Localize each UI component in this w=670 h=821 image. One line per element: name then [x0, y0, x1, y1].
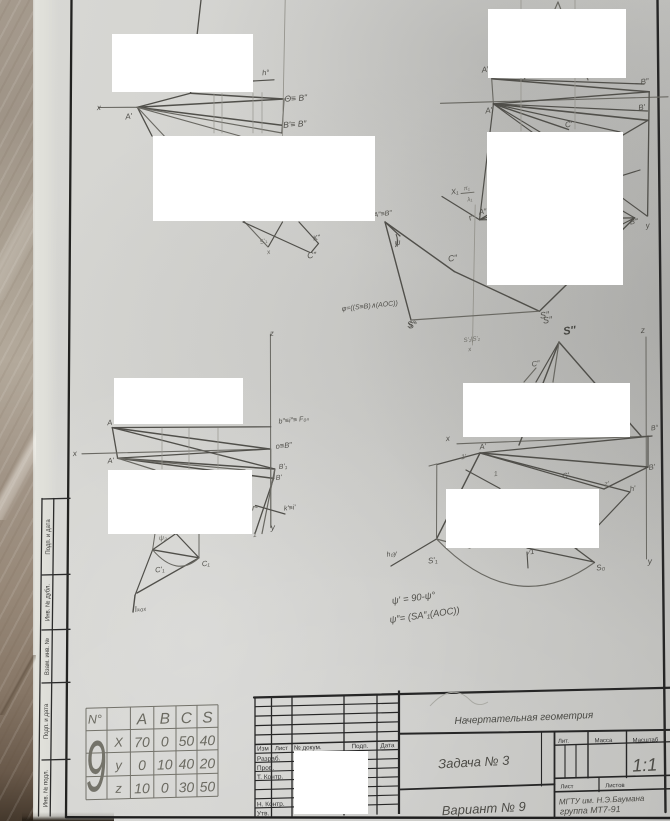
svg-text:Вариант № 9: Вариант № 9 — [441, 799, 526, 818]
svg-text:z': z' — [603, 481, 610, 489]
svg-text:B': B' — [638, 103, 647, 113]
svg-text:S: S — [202, 709, 213, 726]
svg-text:B°: B° — [650, 424, 659, 433]
svg-text:0: 0 — [161, 779, 169, 795]
svg-text:C₁: C₁ — [201, 559, 210, 569]
svg-text:Лист: Лист — [275, 746, 288, 752]
svg-text:30: 30 — [178, 779, 194, 795]
svg-text:10: 10 — [134, 780, 150, 796]
svg-text:B'₁: B'₁ — [278, 463, 288, 471]
svg-text:Разраб.: Разраб. — [257, 754, 281, 763]
svg-text:Инв. № подл.: Инв. № подл. — [42, 769, 49, 807]
svg-text:Пров.: Пров. — [257, 765, 275, 772]
svg-text:Взам. инв. №: Взам. инв. № — [44, 638, 51, 675]
svg-text:S″: S″ — [542, 314, 553, 325]
svg-text:70: 70 — [134, 734, 150, 750]
svg-text:0: 0 — [138, 757, 146, 773]
svg-text:A': A' — [106, 456, 115, 466]
svg-text:A': A' — [484, 106, 494, 116]
svg-text:1': 1' — [461, 454, 468, 462]
svg-text:S₀: S₀ — [596, 562, 606, 572]
svg-text:B': B' — [648, 462, 656, 472]
svg-text:20: 20 — [198, 755, 215, 771]
svg-text:S″: S″ — [563, 324, 578, 338]
svg-text:z: z — [269, 329, 275, 338]
svg-text:x: x — [72, 449, 79, 458]
svg-text:A': A' — [124, 112, 134, 122]
svg-text:Начертательная геометрия: Начертательная геометрия — [454, 710, 594, 727]
svg-text:b″≡i″≡ F₀ₙ: b″≡i″≡ F₀ₙ — [278, 415, 309, 425]
svg-text:Листов: Листов — [605, 783, 625, 790]
svg-text:C″: C″ — [531, 358, 541, 368]
svg-text:Масштаб: Масштаб — [633, 737, 659, 744]
svg-text:B″: B″ — [640, 76, 650, 86]
svg-text:B': B' — [275, 474, 282, 482]
svg-text:C': C' — [562, 471, 571, 481]
svg-text:h': h' — [629, 484, 636, 494]
svg-text:Задача № 3: Задача № 3 — [438, 753, 511, 772]
svg-text:φ=((S≡B)∧(AOC)): φ=((S≡B)∧(AOC)) — [341, 300, 398, 313]
svg-text:S'₁: S'₁ — [427, 555, 438, 565]
svg-text:A″≡B″: A″≡B″ — [372, 210, 393, 220]
svg-text:y: y — [644, 221, 651, 231]
svg-text:10: 10 — [157, 756, 173, 772]
svg-text:группа МТ7-91: группа МТ7-91 — [560, 804, 621, 817]
svg-text:π₁: π₁ — [464, 186, 471, 193]
svg-text:40: 40 — [178, 756, 194, 772]
svg-text:Изм: Изм — [257, 745, 269, 752]
svg-text:S'₂|S'₂: S'₂|S'₂ — [463, 336, 481, 344]
svg-text:z: z — [114, 781, 122, 796]
svg-text:Θ≡ B": Θ≡ B" — [284, 92, 308, 104]
svg-text:50: 50 — [199, 778, 215, 794]
svg-text:9: 9 — [84, 726, 107, 808]
svg-text:C": C" — [307, 249, 318, 260]
svg-text:C'₁: C'₁ — [155, 564, 166, 574]
svg-text:x: x — [445, 434, 452, 443]
svg-text:A: A — [136, 711, 148, 728]
svg-text:ψ' = 90-ψ°: ψ' = 90-ψ° — [391, 590, 436, 607]
svg-text:0: 0 — [161, 733, 169, 749]
svg-text:C″: C″ — [447, 252, 458, 263]
svg-text:y: y — [114, 757, 123, 772]
svg-text:λ₁: λ₁ — [466, 197, 473, 204]
svg-text:Подп. и дата: Подп. и дата — [46, 519, 52, 555]
svg-text:Утв.: Утв. — [257, 810, 270, 817]
svg-text:y: y — [646, 556, 653, 566]
svg-text:Подп.: Подп. — [352, 743, 369, 750]
svg-text:Н. Контр.: Н. Контр. — [257, 801, 285, 809]
svg-text:S'₁: S'₁ — [259, 238, 268, 246]
svg-text:B‴: B‴ — [629, 216, 639, 226]
svg-text:Т. Контр.: Т. Контр. — [257, 774, 284, 782]
svg-text:h₀y: h₀y — [386, 550, 398, 558]
svg-text:k'≡i': k'≡i' — [284, 504, 297, 512]
svg-text:K": K" — [313, 234, 322, 242]
svg-text:X₁: X₁ — [449, 186, 459, 196]
svg-text:1: 1 — [493, 471, 498, 478]
svg-text:o≡B″: o≡B″ — [275, 440, 292, 451]
svg-text:z: z — [639, 325, 646, 335]
svg-text:40: 40 — [199, 732, 215, 748]
svg-text:y: y — [269, 522, 276, 532]
svg-text:Лист: Лист — [560, 784, 573, 790]
svg-text:N°: N° — [88, 712, 102, 726]
svg-text:Инв. № дубл.: Инв. № дубл. — [44, 584, 51, 621]
svg-text:1: 1 — [253, 532, 257, 539]
svg-text:X: X — [113, 734, 124, 749]
svg-text:x: x — [266, 249, 272, 257]
svg-text:h°: h° — [262, 68, 270, 78]
svg-text:A: A — [106, 418, 113, 428]
svg-text:B: B — [159, 710, 170, 727]
svg-text:Дата: Дата — [380, 742, 395, 749]
svg-text:1:1: 1:1 — [632, 754, 658, 775]
svg-text:Масса: Масса — [595, 738, 614, 744]
svg-text:C: C — [181, 710, 193, 727]
svg-text:x: x — [467, 347, 473, 354]
svg-text:50: 50 — [178, 733, 194, 749]
svg-text:Подп. и дата: Подп. и дата — [44, 703, 50, 739]
svg-text:S°: S° — [407, 319, 418, 330]
svg-text:B'≡ B″: B'≡ B″ — [283, 118, 308, 130]
svg-text:A″: A″ — [477, 206, 487, 216]
svg-text:ψ″= (SA″₁(AOC)): ψ″= (SA″₁(AOC)) — [389, 605, 461, 626]
svg-text:lₖₒₓ: lₖₒₓ — [134, 603, 147, 614]
svg-text:ψ: ψ — [394, 238, 401, 248]
svg-text:ψ₂: ψ₂ — [159, 535, 168, 543]
svg-text:Лит.: Лит. — [558, 739, 570, 745]
